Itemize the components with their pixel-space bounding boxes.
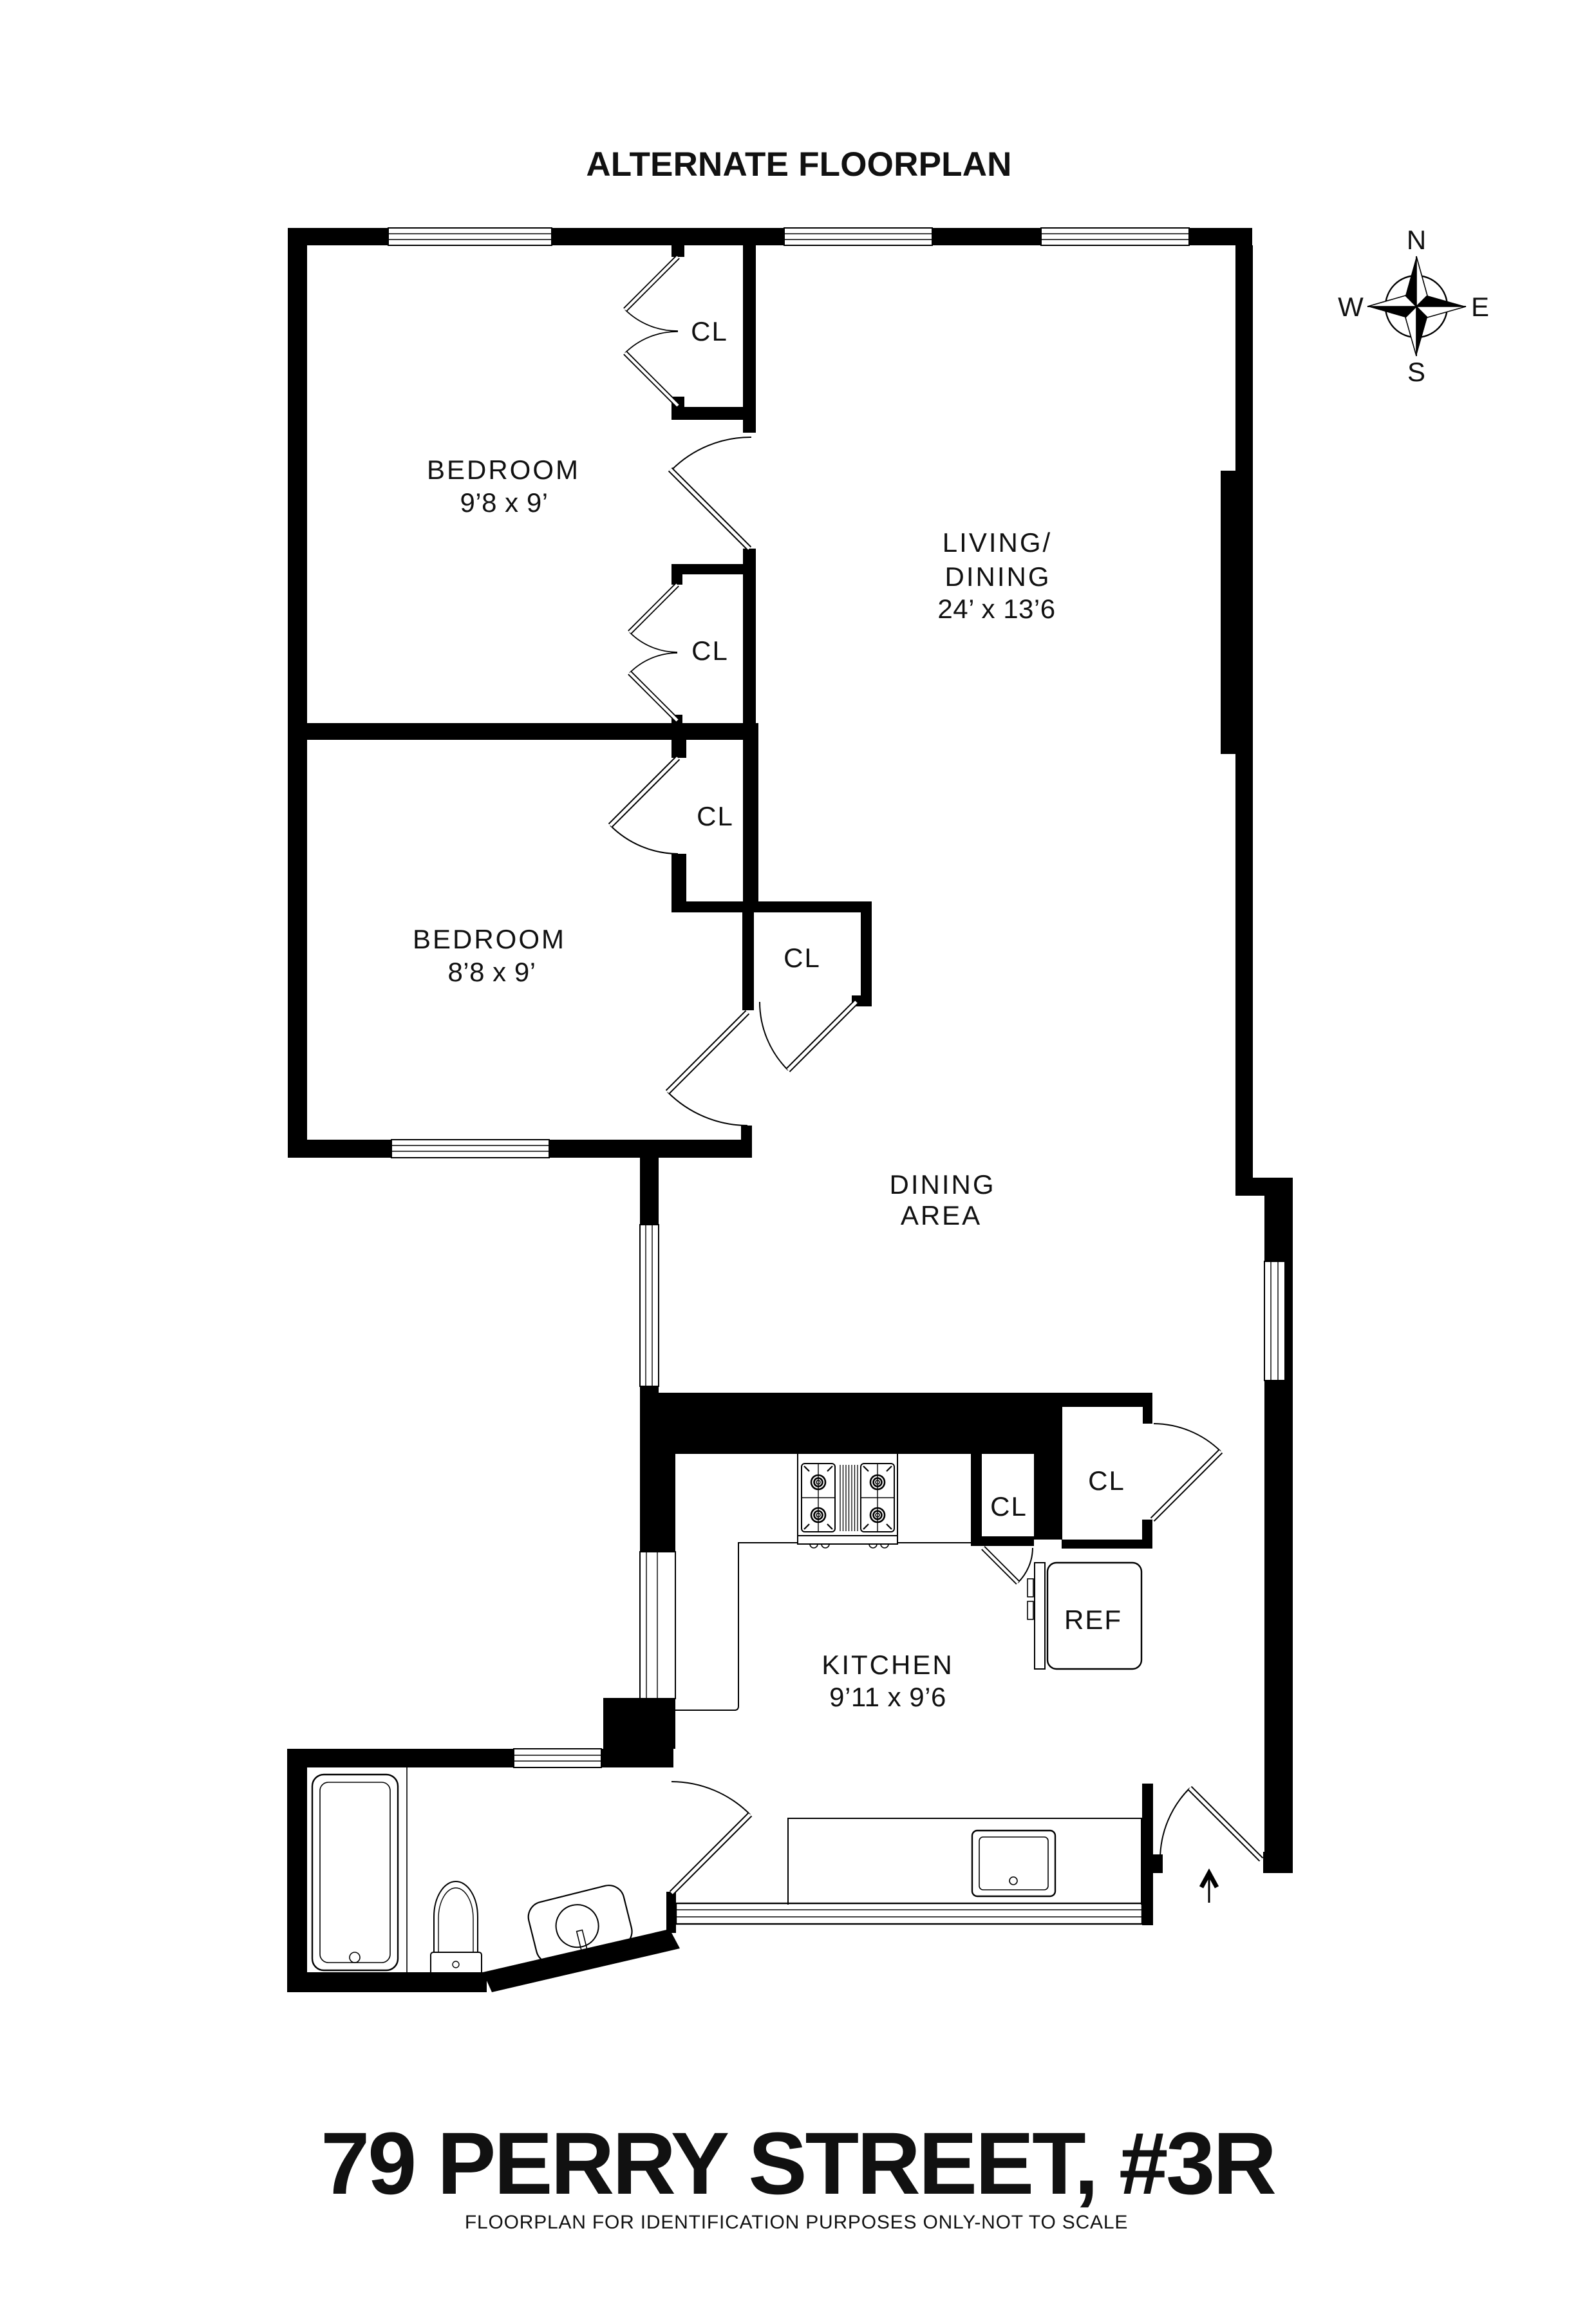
svg-text:CL: CL (1088, 1465, 1125, 1496)
svg-text:CL: CL (990, 1491, 1028, 1522)
svg-text:CL: CL (697, 801, 734, 831)
svg-text:CL: CL (691, 316, 728, 346)
svg-text:79 PERRY STREET, #3R: 79 PERRY STREET, #3R (321, 2115, 1275, 2213)
svg-text:REF: REF (1064, 1605, 1122, 1635)
svg-text:BEDROOM: BEDROOM (413, 924, 566, 954)
svg-text:DINING: DINING (945, 561, 1051, 592)
svg-text:W: W (1338, 292, 1364, 322)
svg-text:8’8 x 9’: 8’8 x 9’ (447, 957, 536, 987)
svg-text:CL: CL (691, 636, 729, 666)
svg-text:9’8 x 9’: 9’8 x 9’ (460, 487, 548, 518)
svg-text:FLOORPLAN FOR IDENTIFICATION P: FLOORPLAN FOR IDENTIFICATION PURPOSES ON… (465, 2212, 1128, 2233)
svg-text:9’11 x 9’6: 9’11 x 9’6 (829, 1682, 946, 1712)
svg-text:BEDROOM: BEDROOM (427, 455, 580, 485)
svg-text:N: N (1407, 225, 1426, 255)
svg-text:AREA: AREA (901, 1200, 982, 1230)
svg-text:ALTERNATE FLOORPLAN: ALTERNATE FLOORPLAN (586, 146, 1011, 184)
svg-text:E: E (1471, 292, 1489, 322)
svg-text:LIVING/: LIVING/ (943, 527, 1052, 558)
svg-text:CL: CL (784, 943, 821, 973)
svg-text:24’ x 13’6: 24’ x 13’6 (937, 594, 1055, 624)
svg-text:KITCHEN: KITCHEN (821, 1650, 953, 1680)
svg-text:DINING: DINING (890, 1169, 996, 1200)
svg-text:S: S (1407, 357, 1425, 387)
